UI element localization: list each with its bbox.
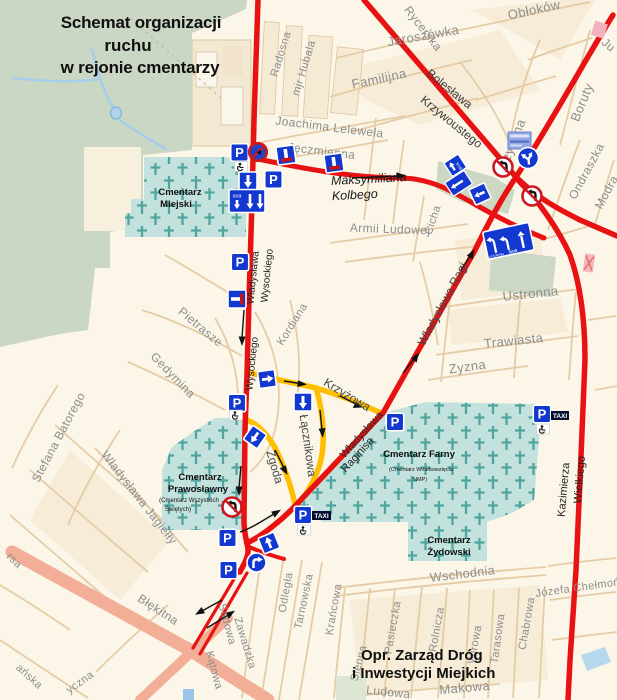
svg-text:Miejski: Miejski: [160, 199, 192, 210]
svg-text:Prawosławny: Prawosławny: [168, 484, 229, 495]
svg-text:Cmentarz: Cmentarz: [178, 472, 222, 483]
svg-text:Cmentarz: Cmentarz: [427, 535, 471, 546]
svg-text:Opr. Zarząd Dróg: Opr. Zarząd Dróg: [361, 647, 483, 664]
svg-text:NMP): NMP): [413, 477, 427, 483]
svg-text:Świętych): Świętych): [165, 505, 191, 513]
svg-text:sna: sna: [233, 194, 243, 200]
svg-text:Cmentarz: Cmentarz: [158, 187, 202, 198]
svg-text:w rejonie cmentarzy: w rejonie cmentarzy: [60, 58, 220, 77]
svg-text:(Cmentarz Wszystkich: (Cmentarz Wszystkich: [159, 498, 219, 504]
svg-text:Armii Ludowej: Armii Ludowej: [350, 221, 431, 238]
svg-text:ruchu: ruchu: [104, 36, 151, 55]
svg-text:(Cmentarz Wniebowzięcia: (Cmentarz Wniebowzięcia: [389, 467, 454, 473]
svg-text:Kolbego: Kolbego: [332, 187, 379, 203]
svg-text:Żydowski: Żydowski: [427, 547, 470, 558]
svg-text:Schemat organizacji: Schemat organizacji: [61, 13, 222, 32]
svg-text:TAXI: TAXI: [314, 513, 329, 520]
svg-text:Cmentarz Farny: Cmentarz Farny: [383, 449, 456, 460]
svg-text:TAXI: TAXI: [553, 413, 568, 420]
svg-text:i Inwestycji Miejkich: i Inwestycji Miejkich: [352, 665, 495, 682]
